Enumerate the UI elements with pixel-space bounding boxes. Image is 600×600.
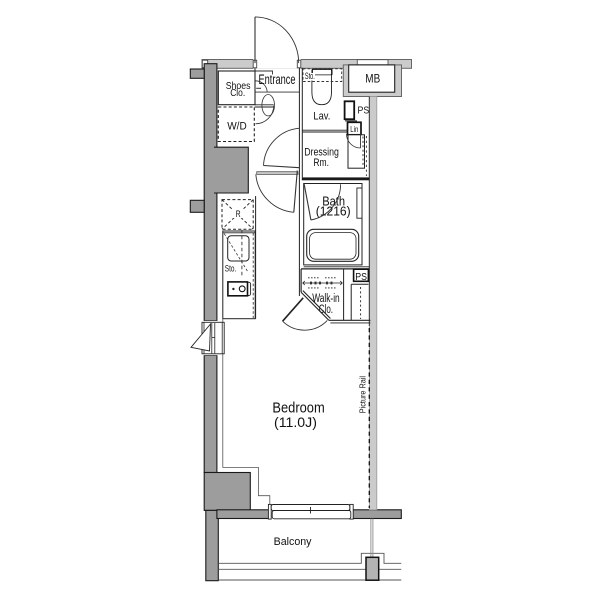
svg-text:MB: MB <box>365 74 380 86</box>
svg-text:PS: PS <box>355 271 367 283</box>
svg-text:Lin: Lin <box>350 125 358 134</box>
svg-text:Balcony: Balcony <box>274 536 312 548</box>
svg-text:Rm.: Rm. <box>313 157 329 169</box>
svg-text:Sto.: Sto. <box>225 264 237 275</box>
svg-text:Sto.: Sto. <box>305 71 315 82</box>
svg-text:Clo.: Clo. <box>230 88 245 99</box>
svg-text:Bedroom: Bedroom <box>272 399 324 416</box>
svg-text:(11.0J): (11.0J) <box>274 415 317 430</box>
svg-text:Lav.: Lav. <box>313 110 330 122</box>
svg-text:W/D: W/D <box>227 120 247 132</box>
svg-text:PS: PS <box>358 104 370 116</box>
svg-text:R: R <box>236 209 241 220</box>
svg-text:Picture Rail: Picture Rail <box>359 376 368 413</box>
